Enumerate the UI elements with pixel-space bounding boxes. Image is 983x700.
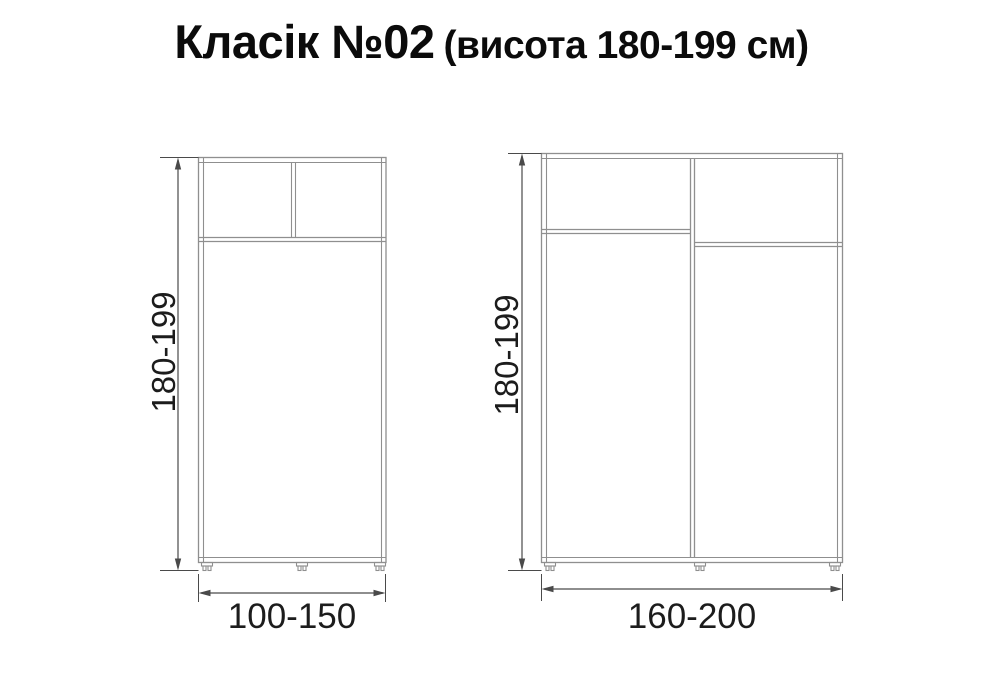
adjustable-foot <box>695 563 706 571</box>
adjustable-foot <box>297 563 308 571</box>
right-wardrobe-drawing <box>542 154 843 571</box>
arrowhead-down <box>519 559 525 571</box>
adjustable-foot <box>830 563 841 571</box>
right-width-label: 160-200 <box>628 597 756 636</box>
arrowhead-up <box>175 158 181 170</box>
left-height-dimension: 180-199 <box>145 158 199 571</box>
right-width-dimension: 160-200 <box>542 574 843 636</box>
left-width-dimension: 100-150 <box>199 574 386 636</box>
arrowhead-right <box>831 586 843 592</box>
arrowhead-left <box>199 590 211 596</box>
left-width-label: 100-150 <box>228 597 356 636</box>
left-wardrobe-outline <box>199 158 387 563</box>
adjustable-foot <box>545 563 556 571</box>
right-height-dimension: 180-199 <box>488 154 542 571</box>
right-height-label: 180-199 <box>488 294 525 415</box>
arrowhead-up <box>519 154 525 166</box>
arrowhead-right <box>374 590 386 596</box>
left-wardrobe-drawing <box>199 158 387 571</box>
adjustable-foot <box>375 563 386 571</box>
arrowhead-left <box>542 586 554 592</box>
wardrobe-diagram-canvas: 180-199 100-150 <box>0 0 983 700</box>
left-height-label: 180-199 <box>145 291 182 412</box>
adjustable-foot <box>202 563 213 571</box>
right-wardrobe-outline <box>542 154 843 563</box>
arrowhead-down <box>175 559 181 571</box>
